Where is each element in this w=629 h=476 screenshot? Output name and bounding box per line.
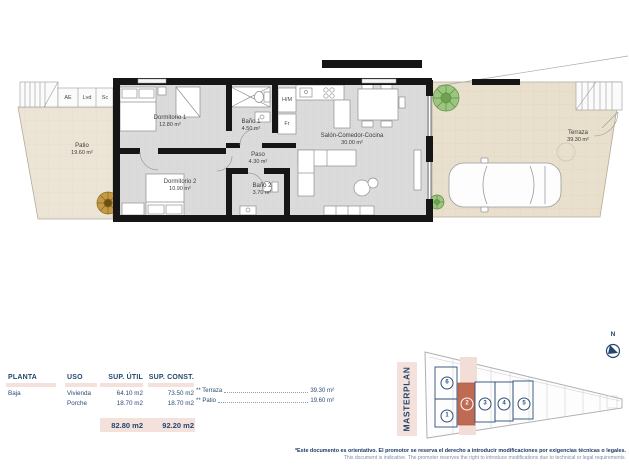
util-row2: 18.70 m2 [100,400,143,407]
masterplan-unit-2-highlighted: 2 [461,398,474,411]
col-header-uso: USO [67,374,83,381]
room-label-bano-2: Baño 2 3.70 m² [252,183,271,197]
closet-label-lvd: Lvd [83,95,92,101]
room-label-paso: Paso 4.30 m² [249,152,268,166]
col-header-sup-const: SUP. CONST. [148,374,194,381]
closet-label-ae: AE [64,95,71,101]
room-label-dormitorio-1: Dormitorio 1 12.80 m² [154,115,187,129]
const-row2: 18.70 m2 [148,400,194,407]
header-underline [65,383,97,387]
util-row1: 64.10 m2 [100,390,143,397]
masterplan-unit-1: 1 [441,410,454,423]
closet-label-fr: Fr [284,121,289,127]
masterplan-unit-6: 6 [441,377,454,390]
header-underline [100,383,143,387]
disclaimer-es: *Este documento es orientativo. El promo… [295,448,626,454]
masterplan-unit-5: 5 [518,398,531,411]
uso-row1: Vivienda [67,390,91,397]
uso-row2: Porche [67,400,87,407]
dotted-leader [224,392,308,393]
total-const: 92.20 m2 [148,421,194,430]
extra-terraza: ** Terraza 39.30 m² [196,388,334,394]
masterplan-unit-3: 3 [479,398,492,411]
closet-label-hm: H/M [282,97,292,103]
total-util: 82.80 m2 [100,421,143,430]
closet-label-sc: Sc [102,95,108,101]
floor-plan-drawing [0,0,629,250]
masterplan-unit-4: 4 [498,398,511,411]
extra-patio: ** Patio 19.60 m² [196,398,334,404]
dotted-leader [218,402,308,403]
room-label-salon: Salón-Comedor-Cocina 30.00 m² [321,133,384,147]
header-underline [148,383,194,387]
room-label-bano-1: Baño 1 4.50 m² [241,119,260,133]
col-header-sup-util: SUP. ÚTIL [100,374,143,381]
floorplan-sheet: Patio 19.60 m² Dormitorio 1 12.80 m² Bañ… [0,0,629,476]
masterplan-diagram [395,330,629,445]
header-underline [6,383,56,387]
room-label-terraza: Terraza 39.30 m² [567,130,589,144]
disclaimer-en: This document is indicative. The promote… [295,455,626,461]
room-label-patio: Patio 19.60 m² [71,143,93,157]
disclaimer: *Este documento es orientativo. El promo… [295,448,626,461]
col-header-planta: PLANTA [8,374,37,381]
room-label-dormitorio-2: Dormitorio 2 10.90 m² [164,179,197,193]
north-label: N [611,331,616,338]
const-row1: 73.50 m2 [148,390,194,397]
planta-value: Baja [8,390,21,397]
